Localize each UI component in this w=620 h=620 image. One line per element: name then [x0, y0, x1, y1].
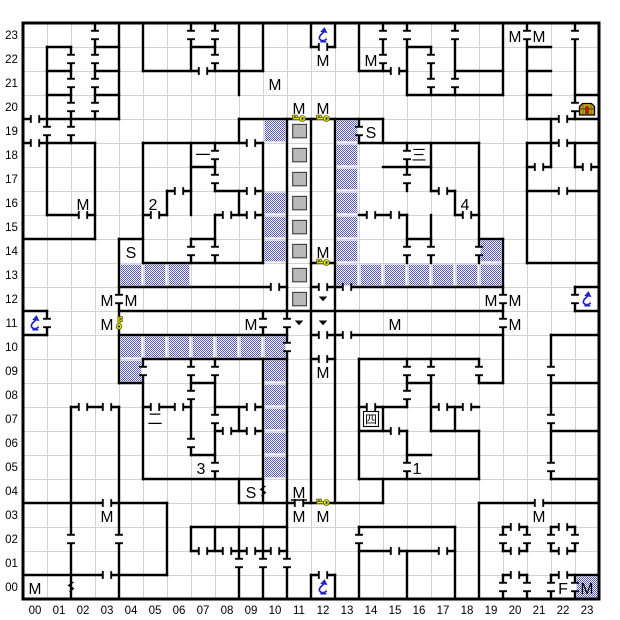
svg-text:16: 16	[413, 605, 426, 617]
svg-text:M: M	[509, 317, 522, 334]
svg-text:M: M	[509, 29, 522, 46]
svg-text:2: 2	[149, 197, 158, 214]
svg-text:M: M	[533, 509, 546, 526]
svg-text:18: 18	[5, 150, 18, 162]
svg-text:14: 14	[365, 605, 378, 617]
svg-text:M: M	[581, 581, 594, 598]
svg-text:23: 23	[5, 30, 18, 42]
svg-text:07: 07	[5, 414, 18, 426]
svg-text:00: 00	[5, 582, 18, 594]
svg-text:12: 12	[5, 294, 18, 306]
svg-text:02: 02	[77, 605, 90, 617]
svg-text:16: 16	[5, 198, 18, 210]
svg-text:一: 一	[195, 147, 210, 164]
svg-text:13: 13	[341, 605, 354, 617]
svg-text:S: S	[366, 125, 377, 142]
svg-text:21: 21	[533, 605, 546, 617]
svg-text:F: F	[558, 581, 568, 598]
svg-text:23: 23	[581, 605, 594, 617]
svg-text:M: M	[317, 365, 330, 382]
svg-text:M: M	[317, 53, 330, 70]
svg-text:07: 07	[197, 605, 210, 617]
svg-text:M: M	[101, 317, 114, 334]
svg-text:17: 17	[437, 605, 450, 617]
svg-text:M: M	[245, 317, 258, 334]
svg-text:02: 02	[5, 534, 18, 546]
svg-text:19: 19	[485, 605, 498, 617]
svg-text:00: 00	[29, 605, 42, 617]
svg-text:09: 09	[245, 605, 258, 617]
svg-text:18: 18	[461, 605, 474, 617]
svg-text:12: 12	[317, 605, 330, 617]
svg-text:M: M	[389, 317, 402, 334]
svg-text:06: 06	[5, 438, 18, 450]
svg-text:03: 03	[101, 605, 114, 617]
svg-text:S: S	[246, 485, 257, 502]
svg-text:M: M	[533, 29, 546, 46]
svg-text:M: M	[485, 293, 498, 310]
svg-text:22: 22	[557, 605, 570, 617]
svg-text:14: 14	[5, 246, 18, 258]
svg-text:M: M	[101, 293, 114, 310]
svg-text:04: 04	[125, 605, 138, 617]
svg-text:01: 01	[53, 605, 66, 617]
svg-text:15: 15	[5, 222, 18, 234]
svg-text:10: 10	[5, 342, 18, 354]
svg-text:M: M	[317, 509, 330, 526]
svg-text:S: S	[126, 245, 137, 262]
svg-text:06: 06	[173, 605, 186, 617]
svg-text:22: 22	[5, 54, 18, 66]
svg-text:19: 19	[5, 126, 18, 138]
svg-text:4: 4	[461, 197, 470, 214]
svg-text:M: M	[77, 197, 90, 214]
svg-text:09: 09	[5, 366, 18, 378]
svg-text:M: M	[365, 53, 378, 70]
svg-text:20: 20	[5, 102, 18, 114]
svg-text:1: 1	[413, 461, 422, 478]
svg-text:08: 08	[221, 605, 234, 617]
svg-text:15: 15	[389, 605, 402, 617]
svg-text:04: 04	[5, 486, 18, 498]
svg-text:11: 11	[293, 605, 305, 617]
svg-text:20: 20	[509, 605, 522, 617]
svg-text:21: 21	[5, 78, 18, 90]
svg-text:M: M	[125, 293, 138, 310]
svg-text:05: 05	[5, 462, 18, 474]
svg-text:四: 四	[365, 413, 377, 427]
svg-text:M: M	[29, 581, 42, 598]
svg-text:M: M	[293, 509, 306, 526]
svg-text:二: 二	[147, 411, 162, 428]
svg-text:01: 01	[5, 558, 18, 570]
svg-text:13: 13	[5, 270, 18, 282]
svg-text:03: 03	[5, 510, 18, 522]
svg-text:M: M	[269, 77, 282, 94]
svg-text:M: M	[101, 509, 114, 526]
svg-text:3: 3	[197, 461, 206, 478]
svg-text:05: 05	[149, 605, 162, 617]
svg-text:10: 10	[269, 605, 282, 617]
svg-text:08: 08	[5, 390, 18, 402]
svg-text:M: M	[509, 293, 522, 310]
svg-text:三: 三	[411, 147, 426, 164]
svg-text:17: 17	[5, 174, 18, 186]
svg-text:11: 11	[6, 318, 18, 330]
